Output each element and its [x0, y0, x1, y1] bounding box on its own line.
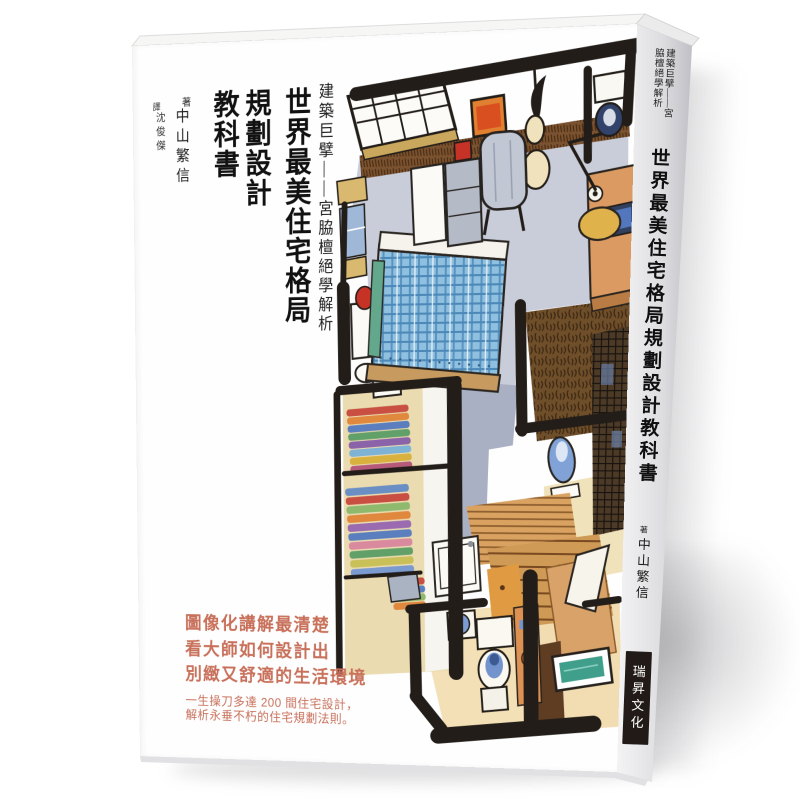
spine-author-label: 著 — [640, 524, 648, 535]
upper-bathroom-toilet — [592, 71, 627, 137]
series-subtitle: 建築巨擘——宮脇檀絕學解析 — [313, 82, 335, 339]
title-line-1: 世界最美住宅格局 — [277, 86, 315, 329]
book-product-photo: 建築巨擘——宮脇檀絕學解析 世界最美住宅格局規劃設計教科書 著 中山繁信 瑞昇文… — [0, 0, 800, 800]
author-name: 中山繁信 — [172, 108, 193, 198]
promo-headline-1: 圖像化講解最清楚 — [185, 610, 401, 640]
title-line-3: 教科書 — [206, 89, 244, 187]
spine-title: 世界最美住宅格局規劃設計教科書 — [632, 147, 672, 483]
promo-block: 圖像化講解最清楚 看大師如何設計出 別緻又舒適的生活環境 一生操刀多達 200 … — [185, 610, 401, 729]
spine-series-subtitle: 建築巨擘——宮脇檀絕學解析 — [649, 48, 674, 123]
promo-headline-3: 別緻又舒適的生活環境 — [185, 661, 400, 692]
translator-name: 沈俊傑 — [152, 112, 167, 164]
bath-mat — [388, 573, 421, 602]
publisher-logo: 瑞昇文化 — [622, 651, 652, 745]
book-front-cover: 建築巨擘——宮脇檀絕學解析 世界最美住宅格局 規劃設計 教科書 著 中山繁信 譯… — [132, 24, 637, 772]
spine-author-name: 中山繁信 — [631, 537, 653, 608]
bed — [366, 229, 509, 392]
